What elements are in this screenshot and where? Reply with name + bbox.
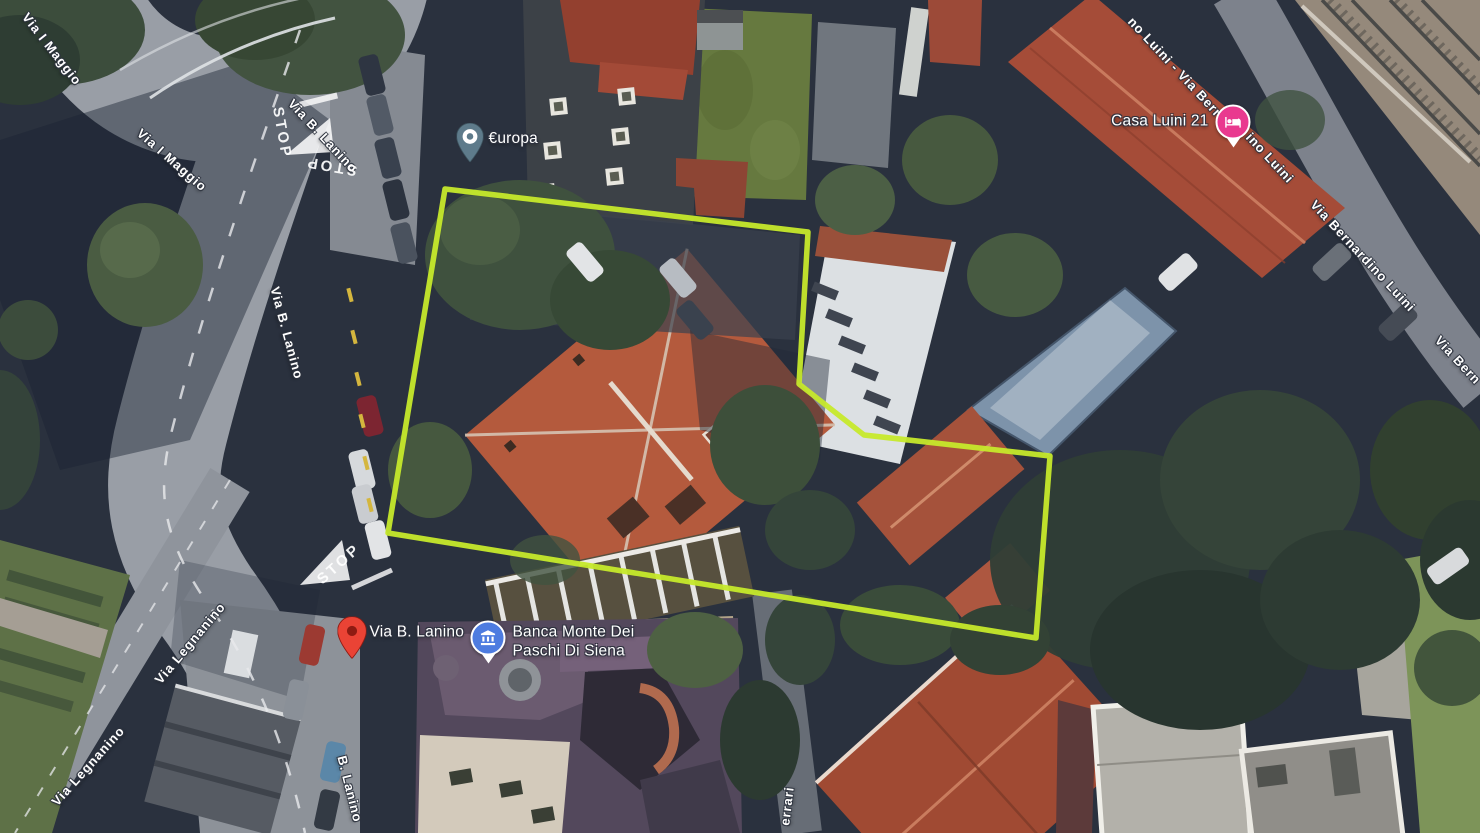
marker-tail <box>1226 138 1240 148</box>
marker-label-line2: Paschi Di Siena <box>513 643 625 660</box>
lodging-marker-casa-luini[interactable]: Casa Luini 21 <box>1216 105 1251 148</box>
dropped-pin-via-b-lanino[interactable]: Via B. Lanino <box>338 617 367 664</box>
satellite-map-view[interactable]: Via I MaggioVia I MaggioVia B. LaninoVia… <box>0 0 1480 833</box>
marker-label: Casa Luini 21 <box>1111 112 1208 131</box>
pin-icon <box>338 617 367 659</box>
marker-label: €uropa <box>489 129 538 148</box>
marker-tail <box>481 654 495 664</box>
place-marker-europa[interactable]: €uropa <box>457 123 484 167</box>
map-pin-icon <box>457 123 484 162</box>
bank-marker-banca-mps[interactable]: Banca Monte Dei Paschi Di Siena <box>471 621 506 664</box>
satellite-imagery <box>0 0 1480 833</box>
marker-label: Banca Monte Dei Paschi Di Siena <box>513 623 635 661</box>
marker-label-line1: Banca Monte Dei <box>513 624 635 641</box>
bank-icon <box>480 630 497 647</box>
marker-label: Via B. Lanino <box>370 623 465 642</box>
bed-icon <box>1225 114 1242 131</box>
